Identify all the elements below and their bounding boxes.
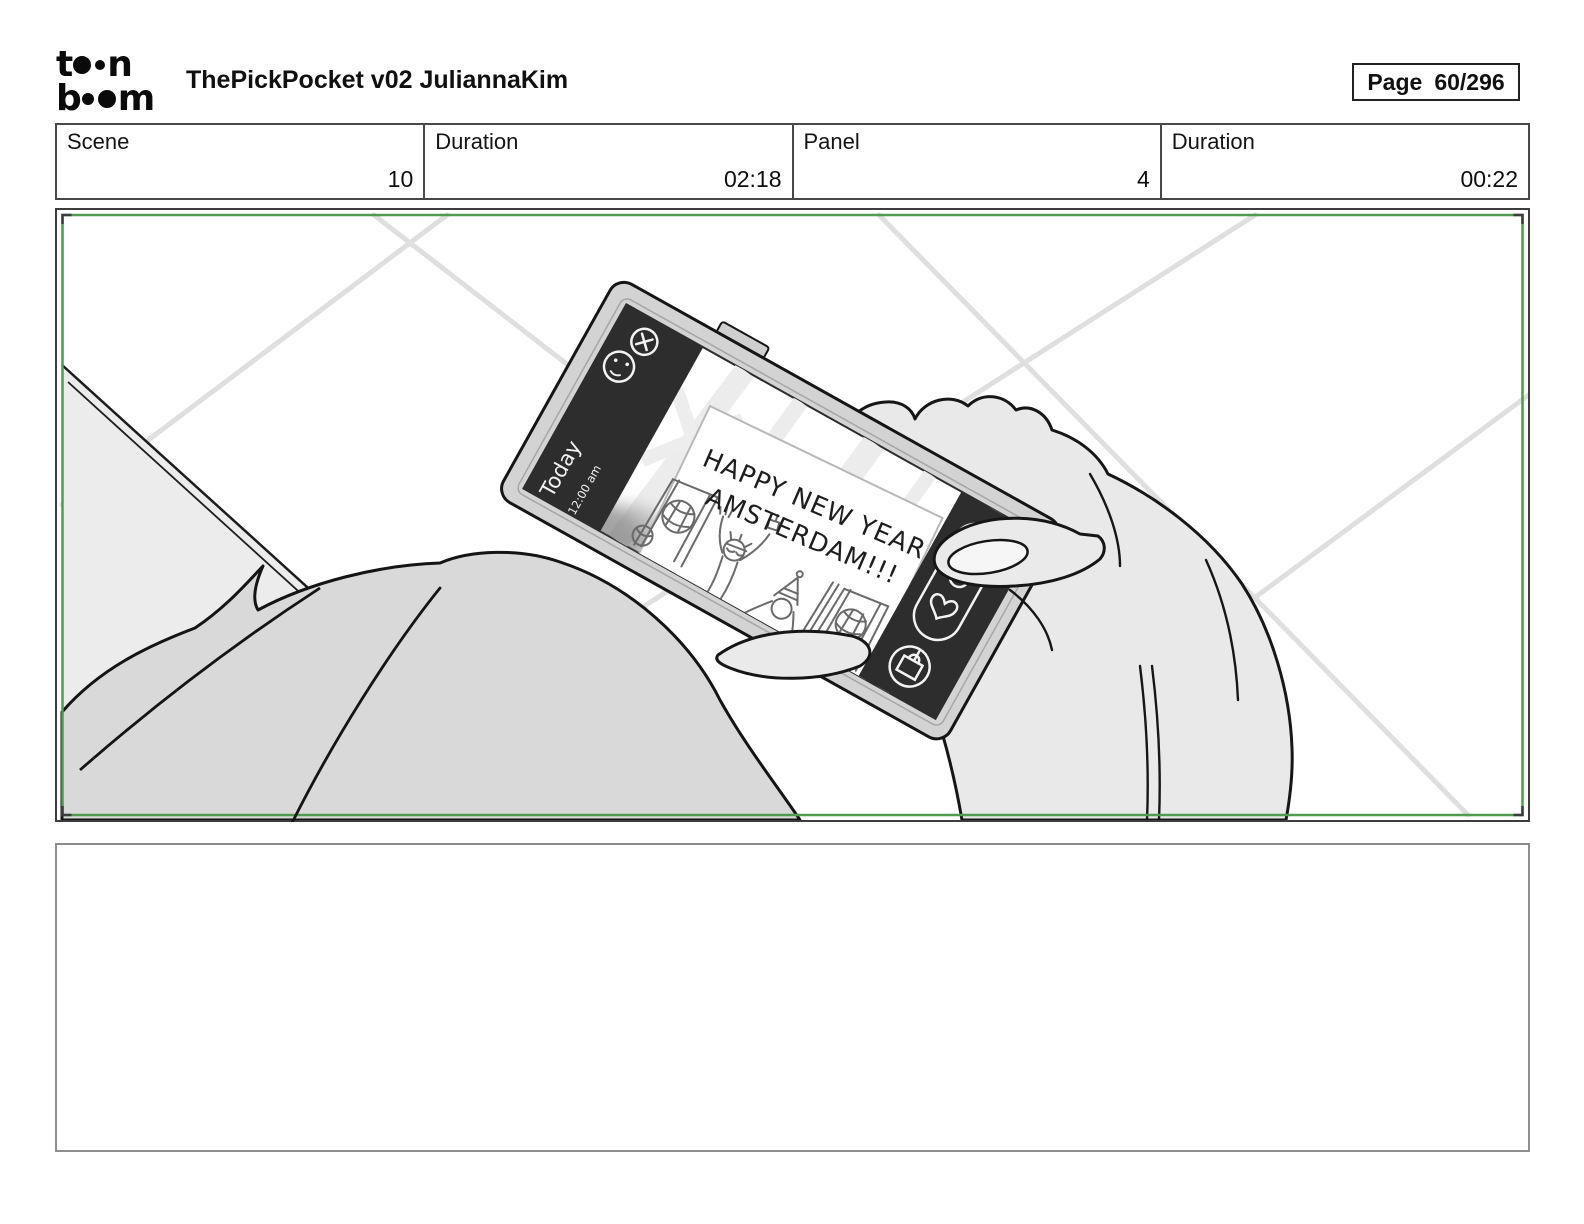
panel-duration-label: Duration bbox=[1172, 129, 1255, 155]
panel-value: 4 bbox=[1137, 166, 1150, 193]
project-title: ThePickPocket v02 JuliannaKim bbox=[186, 66, 568, 95]
page-value: 60/296 bbox=[1434, 69, 1504, 96]
logo-letter: m bbox=[118, 84, 154, 114]
scene-cell: Scene 10 bbox=[57, 125, 425, 198]
logo-dot bbox=[73, 56, 91, 74]
logo-letter: b bbox=[56, 84, 80, 114]
scene-value: 10 bbox=[388, 166, 414, 193]
storyboard-panel: HAPPY NEW YEAR, AMSTERDAM!!! bbox=[55, 208, 1530, 822]
scene-duration-cell: Duration 02:18 bbox=[425, 125, 793, 198]
index-finger bbox=[717, 631, 870, 678]
storyboard-drawing: HAPPY NEW YEAR, AMSTERDAM!!! bbox=[55, 208, 1530, 822]
page-number-box: Page 60/296 bbox=[1352, 63, 1520, 101]
panel-cell: Panel 4 bbox=[794, 125, 1162, 198]
logo-row-1: t n bbox=[56, 48, 178, 82]
scene-duration-value: 02:18 bbox=[724, 166, 782, 193]
logo-row-2: b m bbox=[56, 82, 178, 116]
panel-duration-value: 00:22 bbox=[1460, 166, 1518, 193]
logo-dot bbox=[95, 60, 105, 70]
logo-letter: t bbox=[56, 50, 71, 80]
scene-duration-label: Duration bbox=[435, 129, 518, 155]
scene-label: Scene bbox=[67, 129, 129, 155]
notes-box bbox=[55, 843, 1530, 1152]
page-label: Page bbox=[1367, 69, 1422, 96]
panel-duration-cell: Duration 00:22 bbox=[1162, 125, 1528, 198]
toonboom-logo: t n b m bbox=[56, 46, 178, 118]
shot-info-table: Scene 10 Duration 02:18 Panel 4 Duration… bbox=[55, 123, 1530, 200]
logo-dot bbox=[82, 93, 94, 105]
logo-dot bbox=[98, 90, 116, 108]
panel-label: Panel bbox=[804, 129, 860, 155]
logo-letter: n bbox=[107, 50, 131, 80]
